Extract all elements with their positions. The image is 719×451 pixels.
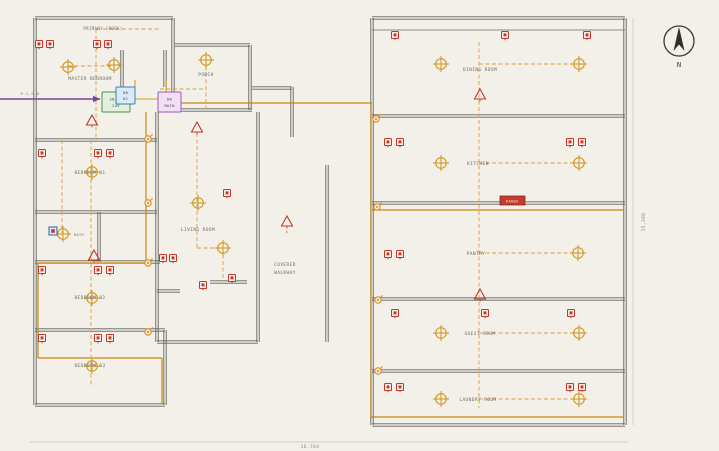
outlet-symbol: [567, 384, 574, 393]
ceiling-light-symbol: [190, 195, 206, 211]
panel-db-main: DBMAIN: [158, 92, 181, 112]
outlet-symbol: [392, 310, 399, 319]
smoke-detector-symbol: [475, 89, 486, 102]
dimension-text-bottom: 16,764: [301, 444, 320, 450]
panel-label: DB: [167, 96, 173, 101]
outlet-symbol: [95, 150, 102, 159]
outlet-symbol: [392, 32, 399, 41]
circuit-junction-symbol: [373, 114, 381, 122]
detector-tag: S: [286, 230, 289, 234]
room-label-laundry-room: LAUNDRY ROOM: [459, 397, 496, 403]
ceiling-light-symbol: [215, 240, 231, 256]
circuit-junction-symbol: [375, 366, 383, 374]
ceiling-light-symbol: [433, 325, 449, 341]
room-label-walkway: WALKWAY: [274, 270, 296, 276]
outlet-symbol: [482, 310, 489, 319]
outlet-symbol: [385, 139, 392, 148]
circuit-junction-symbol: [374, 202, 382, 210]
outlet-symbol: [397, 384, 404, 393]
service-feeder-arrow: [93, 96, 100, 102]
panel-label: MAIN: [164, 103, 175, 108]
smoke-detector-symbol: [475, 289, 486, 302]
outlet-symbol: [224, 190, 231, 199]
outlet-symbol: [584, 32, 591, 41]
room-label-kitchen: KITCHEN: [467, 161, 489, 167]
ceiling-light-symbol: [106, 57, 122, 73]
floor-plan-page: M.S.E.BSSB-LA24VDB02DBMAINRANGEPRIMARY (…: [0, 0, 719, 451]
outlet-symbol: [95, 267, 102, 276]
room-label-dining-room: DINING ROOM: [463, 67, 497, 73]
outlet-symbol: [579, 384, 586, 393]
north-compass-icon: [664, 26, 694, 56]
outlet-symbol: [107, 150, 114, 159]
outlet-symbol: [385, 384, 392, 393]
room-label-primary-roof-: PRIMARY (ROOF): [83, 26, 122, 31]
room-label-bath: BATH: [74, 233, 84, 237]
outlet-symbol: [579, 139, 586, 148]
outlet-symbol: [47, 41, 54, 50]
ceiling-light-symbol: [571, 56, 587, 72]
outlet-symbol: [94, 41, 101, 50]
ceiling-light-symbol: [571, 155, 587, 171]
service-entry-label: M.S.E.B: [21, 91, 40, 96]
ceiling-light-symbol: [433, 391, 449, 407]
room-label-living-room: LIVING ROOM: [181, 227, 215, 233]
room-label-porch: PORCH: [198, 72, 214, 78]
ceiling-light-symbol: [433, 56, 449, 72]
outlet-symbol: [568, 310, 575, 319]
ceiling-light-symbol: [433, 155, 449, 171]
bath-fixture-symbol: [49, 227, 57, 235]
outlet-symbol: [160, 255, 167, 264]
outlet-symbol: [229, 275, 236, 284]
ceiling-light-symbol: [571, 325, 587, 341]
outlet-symbol: [39, 335, 46, 344]
outlet-symbol: [567, 139, 574, 148]
room-label-covered: COVERED: [274, 262, 296, 268]
room-label-master-bedroom: MASTER BEDROOM: [68, 76, 112, 82]
room-label-guest-room: GUEST ROOM: [464, 331, 495, 337]
outlet-symbol: [39, 150, 46, 159]
compass-north-label: N: [677, 61, 681, 69]
outlet-symbol: [170, 255, 177, 264]
smoke-detector-symbol: [192, 122, 203, 135]
outlet-symbol: [385, 251, 392, 260]
room-label-bedroom-02: BEDROOM 02: [74, 295, 105, 301]
outlet-symbol: [105, 41, 112, 50]
ceiling-light-symbol: [571, 391, 587, 407]
room-label-bedroom-03: BEDROOM 03: [74, 363, 105, 369]
panel-label: 02: [123, 96, 128, 101]
outlet-symbol: [95, 335, 102, 344]
outlet-symbol: [36, 41, 43, 50]
outlet-symbol: [397, 139, 404, 148]
ceiling-light-symbol: [60, 59, 76, 75]
outlet-symbol: [107, 267, 114, 276]
ceiling-light-symbol: [198, 52, 214, 68]
circuit-junction-symbol: [375, 295, 383, 303]
outlet-symbol: [39, 267, 46, 276]
outlet-symbol: [502, 32, 509, 41]
range-outlet: RANGE: [500, 196, 525, 205]
panel-db-02: DB02: [116, 87, 135, 104]
room-label-bedroom-01: BEDROOM 01: [74, 170, 105, 176]
outlet-symbol: [397, 251, 404, 260]
outlet-symbol: [107, 335, 114, 344]
floor-plan-canvas: M.S.E.BSSB-LA24VDB02DBMAINRANGEPRIMARY (…: [0, 0, 719, 451]
smoke-detector-symbol: [282, 216, 293, 229]
room-label-pantry: PANTRY: [467, 251, 486, 257]
dimension-text-right: 15,380: [641, 213, 647, 232]
ceiling-light-symbol: [570, 245, 586, 261]
outlet-symbol: [200, 282, 207, 291]
panel-label: DB: [123, 90, 129, 95]
range-outlet-label: RANGE: [506, 200, 519, 204]
